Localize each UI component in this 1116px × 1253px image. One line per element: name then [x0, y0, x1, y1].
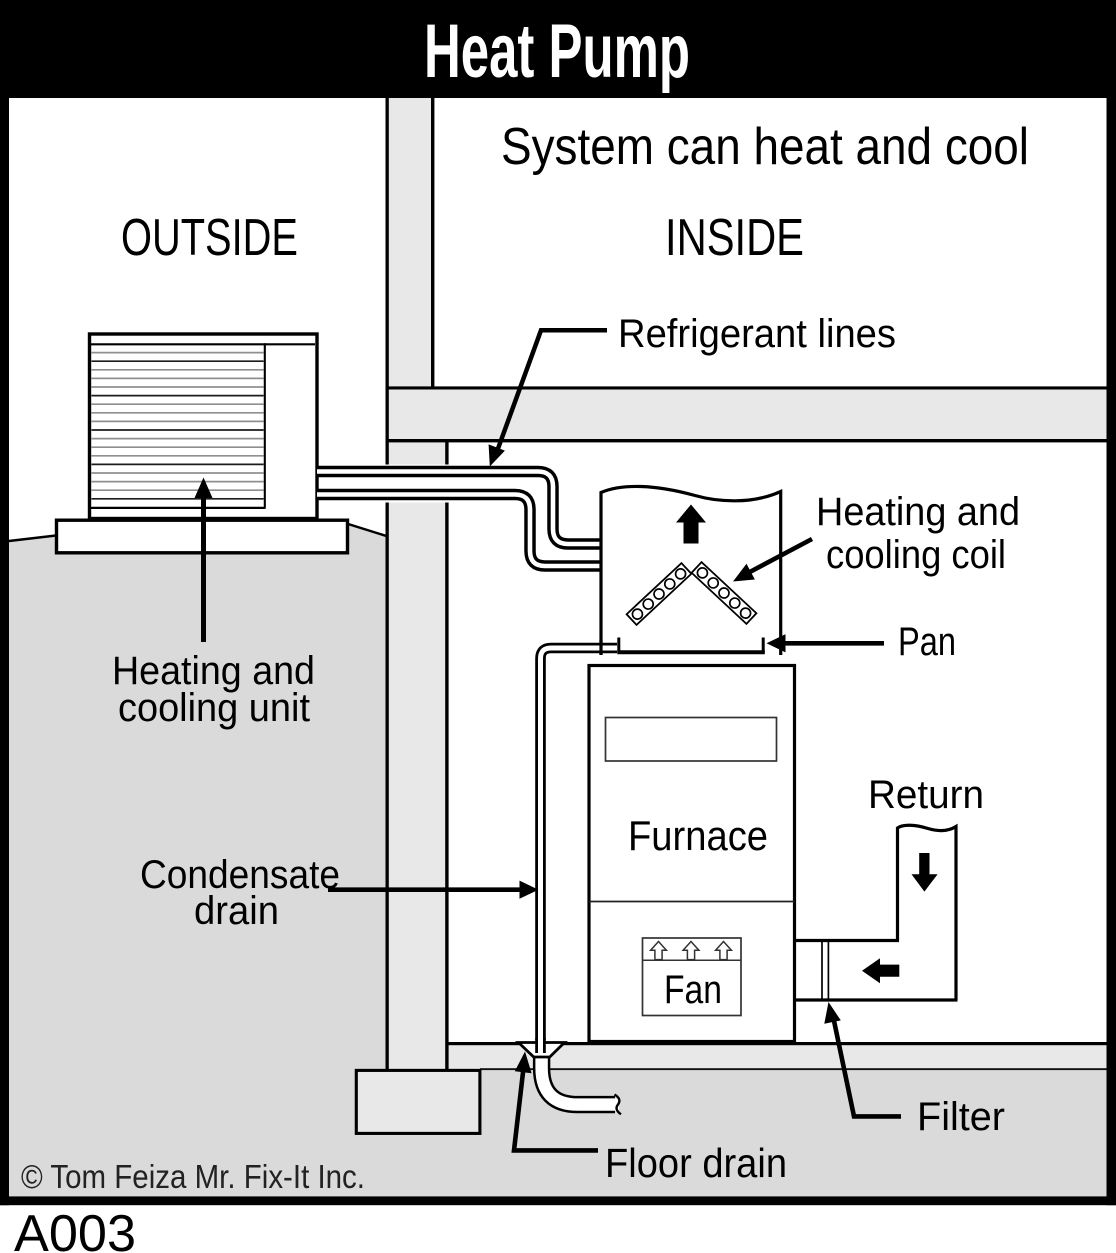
svg-text:INSIDE: INSIDE [665, 209, 804, 267]
svg-text:OUTSIDE: OUTSIDE [121, 209, 298, 267]
svg-text:Pan: Pan [898, 620, 956, 664]
svg-text:Return: Return [868, 773, 984, 817]
svg-text:cooling coil: cooling coil [826, 533, 1006, 577]
svg-text:Floor drain: Floor drain [605, 1140, 787, 1186]
svg-text:© Tom Feiza Mr. Fix-It Inc.: © Tom Feiza Mr. Fix-It Inc. [21, 1158, 365, 1195]
svg-text:Refrigerant lines: Refrigerant lines [618, 312, 896, 356]
svg-text:Heating and: Heating and [816, 490, 1020, 534]
svg-text:drain: drain [194, 889, 279, 933]
svg-text:A003: A003 [14, 1205, 136, 1253]
svg-text:cooling unit: cooling unit [118, 686, 310, 730]
svg-text:Heat Pump: Heat Pump [424, 9, 690, 94]
svg-text:Furnace: Furnace [628, 812, 768, 859]
svg-text:Fan: Fan [664, 968, 722, 1012]
svg-text:System can heat and cool: System can heat and cool [501, 118, 1029, 176]
svg-text:Filter: Filter [917, 1095, 1005, 1139]
